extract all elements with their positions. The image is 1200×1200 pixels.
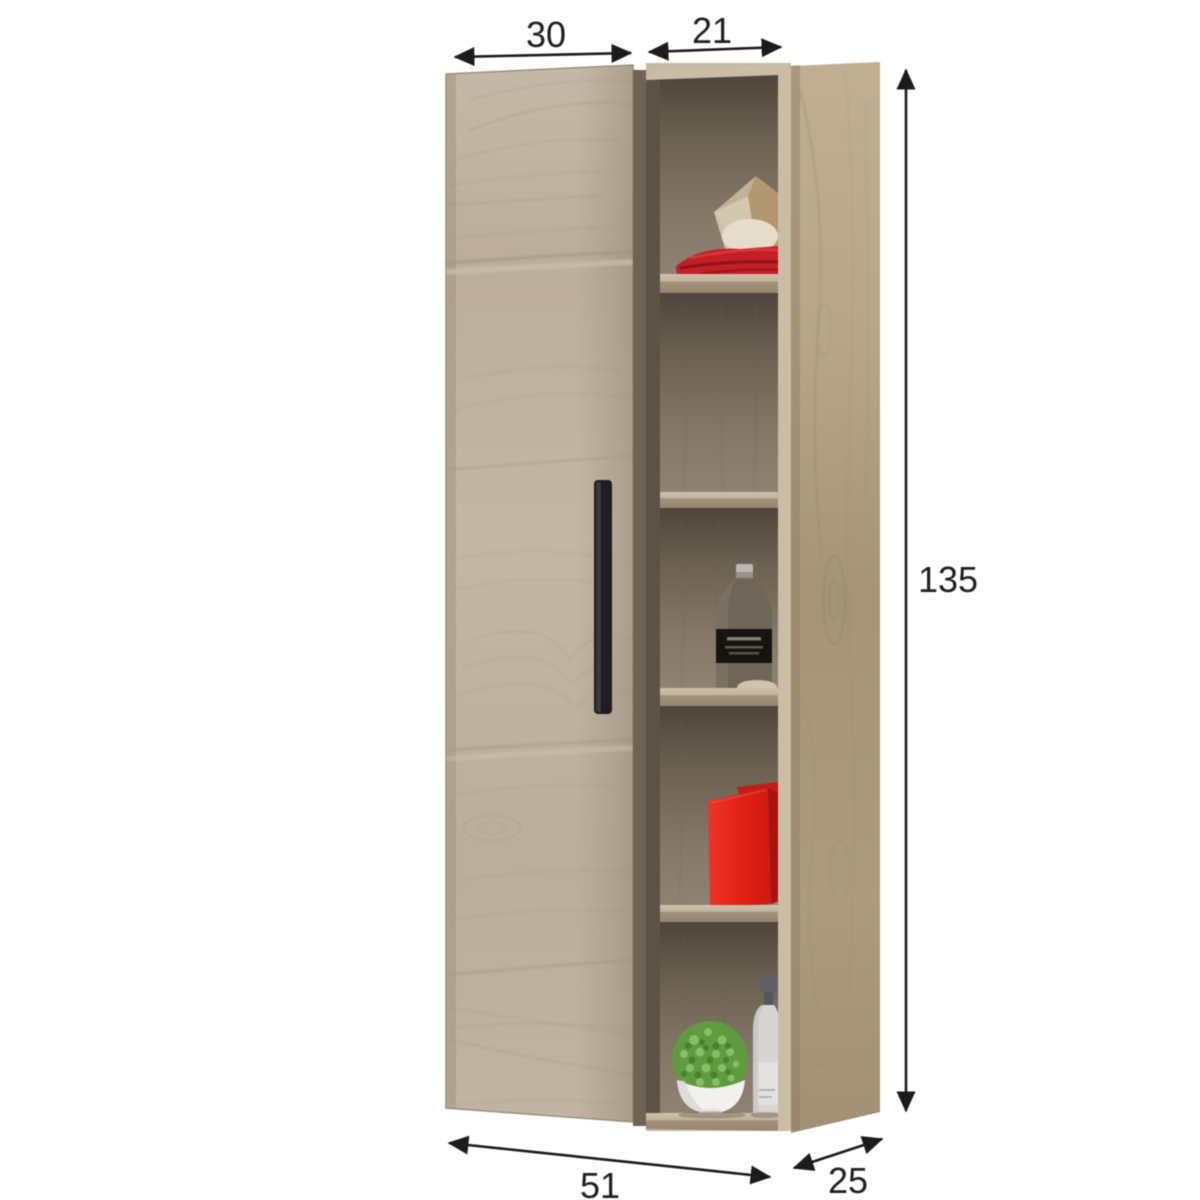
svg-text:51: 51 (580, 1165, 620, 1200)
svg-text:30: 30 (526, 14, 566, 55)
svg-text:135: 135 (918, 559, 978, 600)
svg-text:25: 25 (828, 1160, 868, 1200)
svg-text:21: 21 (692, 10, 732, 51)
